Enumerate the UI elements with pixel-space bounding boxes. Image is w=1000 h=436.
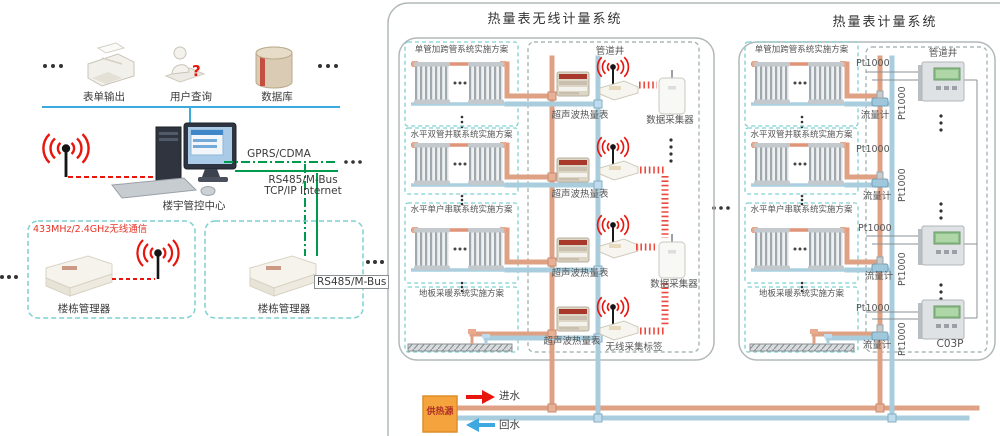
scheme-label: 水平双管并联系统实施方案: [746, 131, 857, 141]
scheme-label: 单管加跨管系统实施方案: [746, 46, 857, 56]
pt1000-vertical-label: Pt1000: [897, 162, 908, 208]
supply-arrow-icon: [466, 390, 495, 404]
ultrasonic-meter-label: 超声波热量表: [546, 190, 614, 201]
scheme-label: 水平双管并联系统实施方案: [406, 131, 517, 141]
pt1000-label: Pt1000: [858, 224, 904, 235]
tcpip-label: TCP/IP Internet: [258, 185, 348, 197]
gprs-label: GPRS/CDMA: [240, 148, 318, 160]
workstation-icon: [112, 123, 236, 198]
controller-device-icon: [46, 256, 112, 296]
scheme-label: 水平单户串联系统实施方案: [406, 206, 517, 216]
building-manager-1-label: 楼栋管理器: [48, 303, 120, 315]
management-center-label: 楼宇管控中心: [148, 200, 240, 212]
question-mark: ?: [192, 62, 201, 80]
diagram-art: [0, 0, 1000, 436]
data-collector-label: 数据采集器: [638, 280, 710, 291]
heat-source-label: 供热源: [423, 407, 457, 417]
meter-model-label: C03P: [928, 338, 972, 350]
controller-device-icon: [250, 256, 316, 296]
ultrasonic-meter-label: 超声波热量表: [546, 111, 614, 122]
flow-meter-label: 流量计: [858, 272, 900, 283]
pt1000-label: Pt1000: [856, 145, 902, 156]
database-icon: [256, 47, 292, 88]
return-water-label: 回水: [499, 419, 531, 431]
pipe-well-label: 管道井: [908, 49, 978, 60]
building-manager-2-label: 楼栋管理器: [248, 303, 320, 315]
wireless-system-title: 热量表无线计量系统: [465, 13, 645, 28]
form-output-label: 表单输出: [68, 91, 140, 103]
pt1000-vertical-label: Pt1000: [897, 246, 908, 292]
scheme-label: 水平单户串联系统实施方案: [746, 206, 857, 216]
flow-meter-label: 流量计: [856, 341, 898, 352]
center-antenna-icon: [43, 134, 156, 177]
pt1000-label: Pt1000: [856, 59, 902, 70]
data-collector-icons: [659, 70, 685, 278]
wireless-note-label: 433MHz/2.4GHz无线通信: [33, 225, 167, 236]
pt1000-vertical-label: Pt1000: [897, 316, 908, 362]
ultrasonic-meter-label: 超声波热量表: [546, 269, 614, 280]
rs485-bottom-label: RS485/M-Bus: [314, 275, 389, 289]
scheme-label: 单管加跨管系统实施方案: [406, 46, 517, 56]
pt1000-vertical-label: Pt1000: [897, 80, 908, 126]
user-query-label: 用户查询: [155, 91, 227, 103]
flow-meter-label: 流量计: [854, 111, 896, 122]
database-label: 数据库: [245, 91, 309, 103]
supply-water-label: 进水: [499, 390, 531, 402]
diagram-canvas: 表单输出 用户查询 数据库 ? 楼宇管控中心 GPRS/CDMA RS485/M…: [0, 0, 1000, 436]
wired-system-title: 热量表计量系统: [815, 16, 955, 31]
printer-icon: [88, 43, 134, 86]
scheme-label: 地板采暖系统实施方案: [406, 290, 517, 300]
flow-meter-label: 流量计: [856, 192, 898, 203]
data-collector-label: 数据采集器: [634, 116, 706, 127]
pt1000-label: Pt1000: [856, 304, 902, 315]
building-antenna-icon: [137, 240, 178, 279]
scheme-label: 地板采暖系统实施方案: [746, 290, 857, 300]
pipe-well-label: 管道井: [575, 47, 645, 58]
wireless-tag-label: 无线采集标签: [596, 343, 672, 354]
